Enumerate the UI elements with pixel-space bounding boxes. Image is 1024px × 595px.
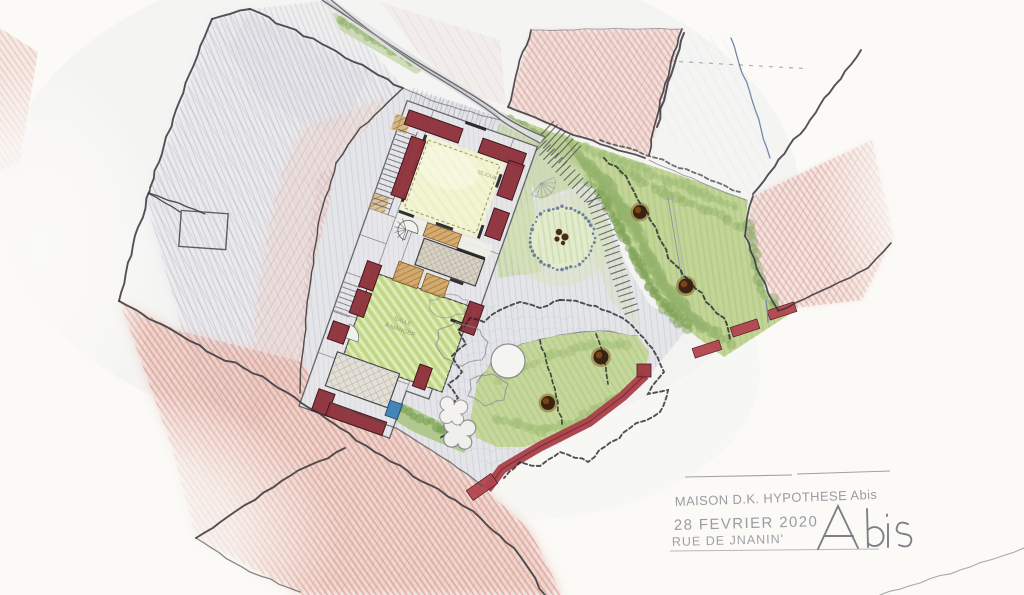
svg-text:RUE DE JNANIN': RUE DE JNANIN' xyxy=(672,532,785,549)
